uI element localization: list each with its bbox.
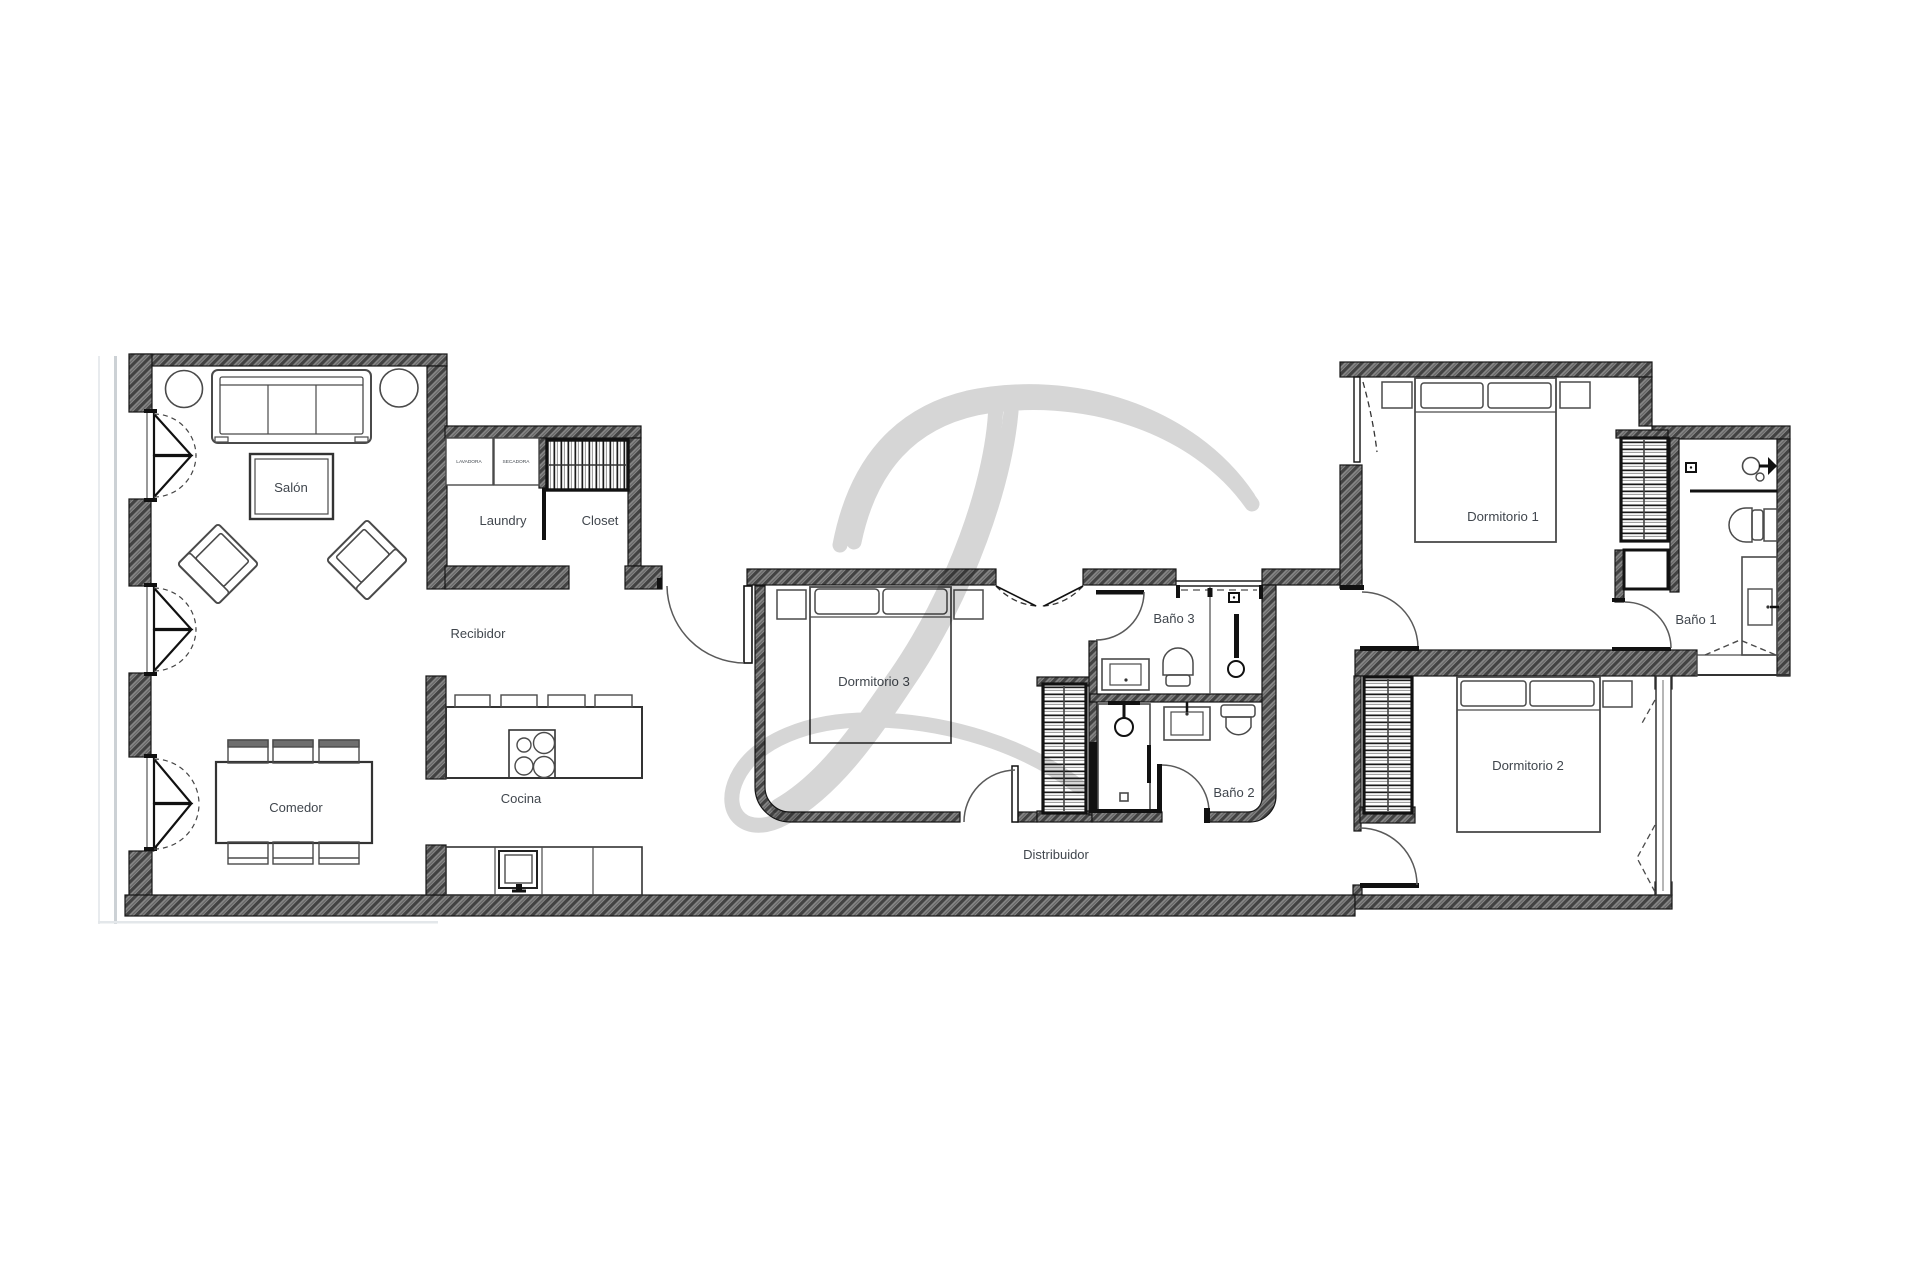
svg-text:Recibidor: Recibidor [451, 626, 507, 641]
svg-text:Dormitorio 2: Dormitorio 2 [1492, 758, 1564, 773]
svg-text:Baño 3: Baño 3 [1153, 611, 1194, 626]
svg-text:Baño 1: Baño 1 [1675, 612, 1716, 627]
svg-text:LAVADORA: LAVADORA [456, 459, 482, 465]
svg-text:Closet: Closet [582, 513, 619, 528]
svg-text:Baño 2: Baño 2 [1213, 785, 1254, 800]
svg-text:Dormitorio 1: Dormitorio 1 [1467, 509, 1539, 524]
svg-text:Comedor: Comedor [269, 800, 323, 815]
svg-text:Laundry: Laundry [480, 513, 527, 528]
svg-text:SECADORA: SECADORA [503, 459, 531, 465]
svg-text:Distribuidor: Distribuidor [1023, 847, 1089, 862]
svg-text:Salón: Salón [274, 480, 308, 495]
svg-text:Cocina: Cocina [501, 791, 542, 806]
